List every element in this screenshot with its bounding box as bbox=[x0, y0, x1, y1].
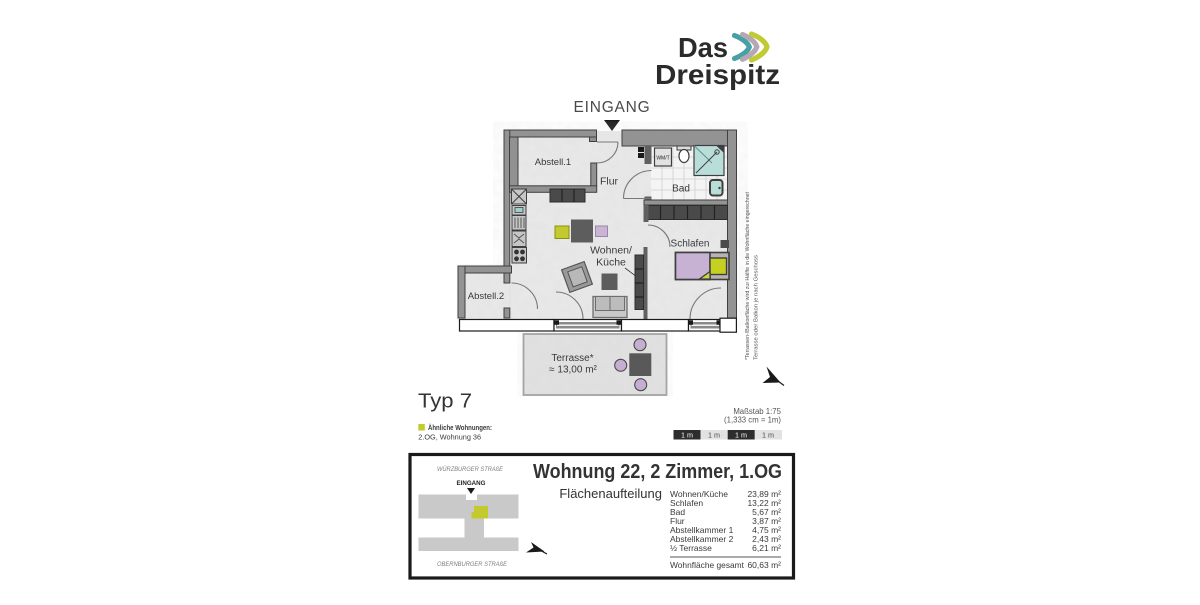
svg-text:6,21 m²: 6,21 m² bbox=[752, 543, 781, 553]
svg-text:Küche: Küche bbox=[596, 257, 626, 269]
svg-text:60,63 m²: 60,63 m² bbox=[747, 560, 781, 570]
svg-text:1 m: 1 m bbox=[681, 430, 693, 439]
svg-text:Bad: Bad bbox=[672, 184, 690, 195]
svg-text:EINGANG: EINGANG bbox=[457, 480, 486, 487]
svg-text:OBERNBURGER STRAßE: OBERNBURGER STRAßE bbox=[437, 561, 508, 568]
svg-text:Terrasse oder Balkon je nach G: Terrasse oder Balkon je nach Geschoss bbox=[754, 255, 760, 360]
svg-text:1 m: 1 m bbox=[735, 430, 747, 439]
svg-text:1 m: 1 m bbox=[708, 430, 720, 439]
svg-text:½ Terrasse: ½ Terrasse bbox=[670, 543, 712, 553]
svg-text:Wohnung 22, 2 Zimmer, 1.OG: Wohnung 22, 2 Zimmer, 1.OG bbox=[533, 460, 782, 483]
svg-text:Flächenaufteilung: Flächenaufteilung bbox=[559, 486, 662, 501]
svg-text:Terrasse*: Terrasse* bbox=[551, 353, 593, 364]
svg-text:EINGANG: EINGANG bbox=[573, 99, 650, 116]
svg-text:WM/T: WM/T bbox=[656, 156, 669, 162]
svg-text:Typ 7: Typ 7 bbox=[418, 390, 472, 413]
svg-text:Wohnen/: Wohnen/ bbox=[590, 245, 632, 257]
svg-text:Schlafen: Schlafen bbox=[671, 239, 710, 250]
svg-text:Flur: Flur bbox=[600, 176, 619, 188]
svg-text:2.OG, Wohnung 36: 2.OG, Wohnung 36 bbox=[418, 432, 481, 441]
svg-text:Ähnliche Wohnungen:: Ähnliche Wohnungen: bbox=[428, 423, 492, 432]
svg-text:Abstell.2: Abstell.2 bbox=[468, 291, 504, 302]
svg-text:≈ 13,00 m²: ≈ 13,00 m² bbox=[549, 365, 597, 376]
svg-text:Dreispitz: Dreispitz bbox=[655, 59, 780, 90]
svg-text:WÜRZBURGER STRAßE: WÜRZBURGER STRAßE bbox=[437, 466, 504, 473]
svg-text:Abstell.1: Abstell.1 bbox=[535, 157, 571, 168]
svg-text:*Terrassen-/Balkonfläche wird: *Terrassen-/Balkonfläche wird zur Hälfte… bbox=[745, 192, 751, 360]
svg-text:(1,333 cm = 1m): (1,333 cm = 1m) bbox=[724, 416, 781, 425]
svg-text:Wohnfläche gesamt: Wohnfläche gesamt bbox=[670, 560, 745, 570]
svg-text:1 m: 1 m bbox=[762, 430, 774, 439]
